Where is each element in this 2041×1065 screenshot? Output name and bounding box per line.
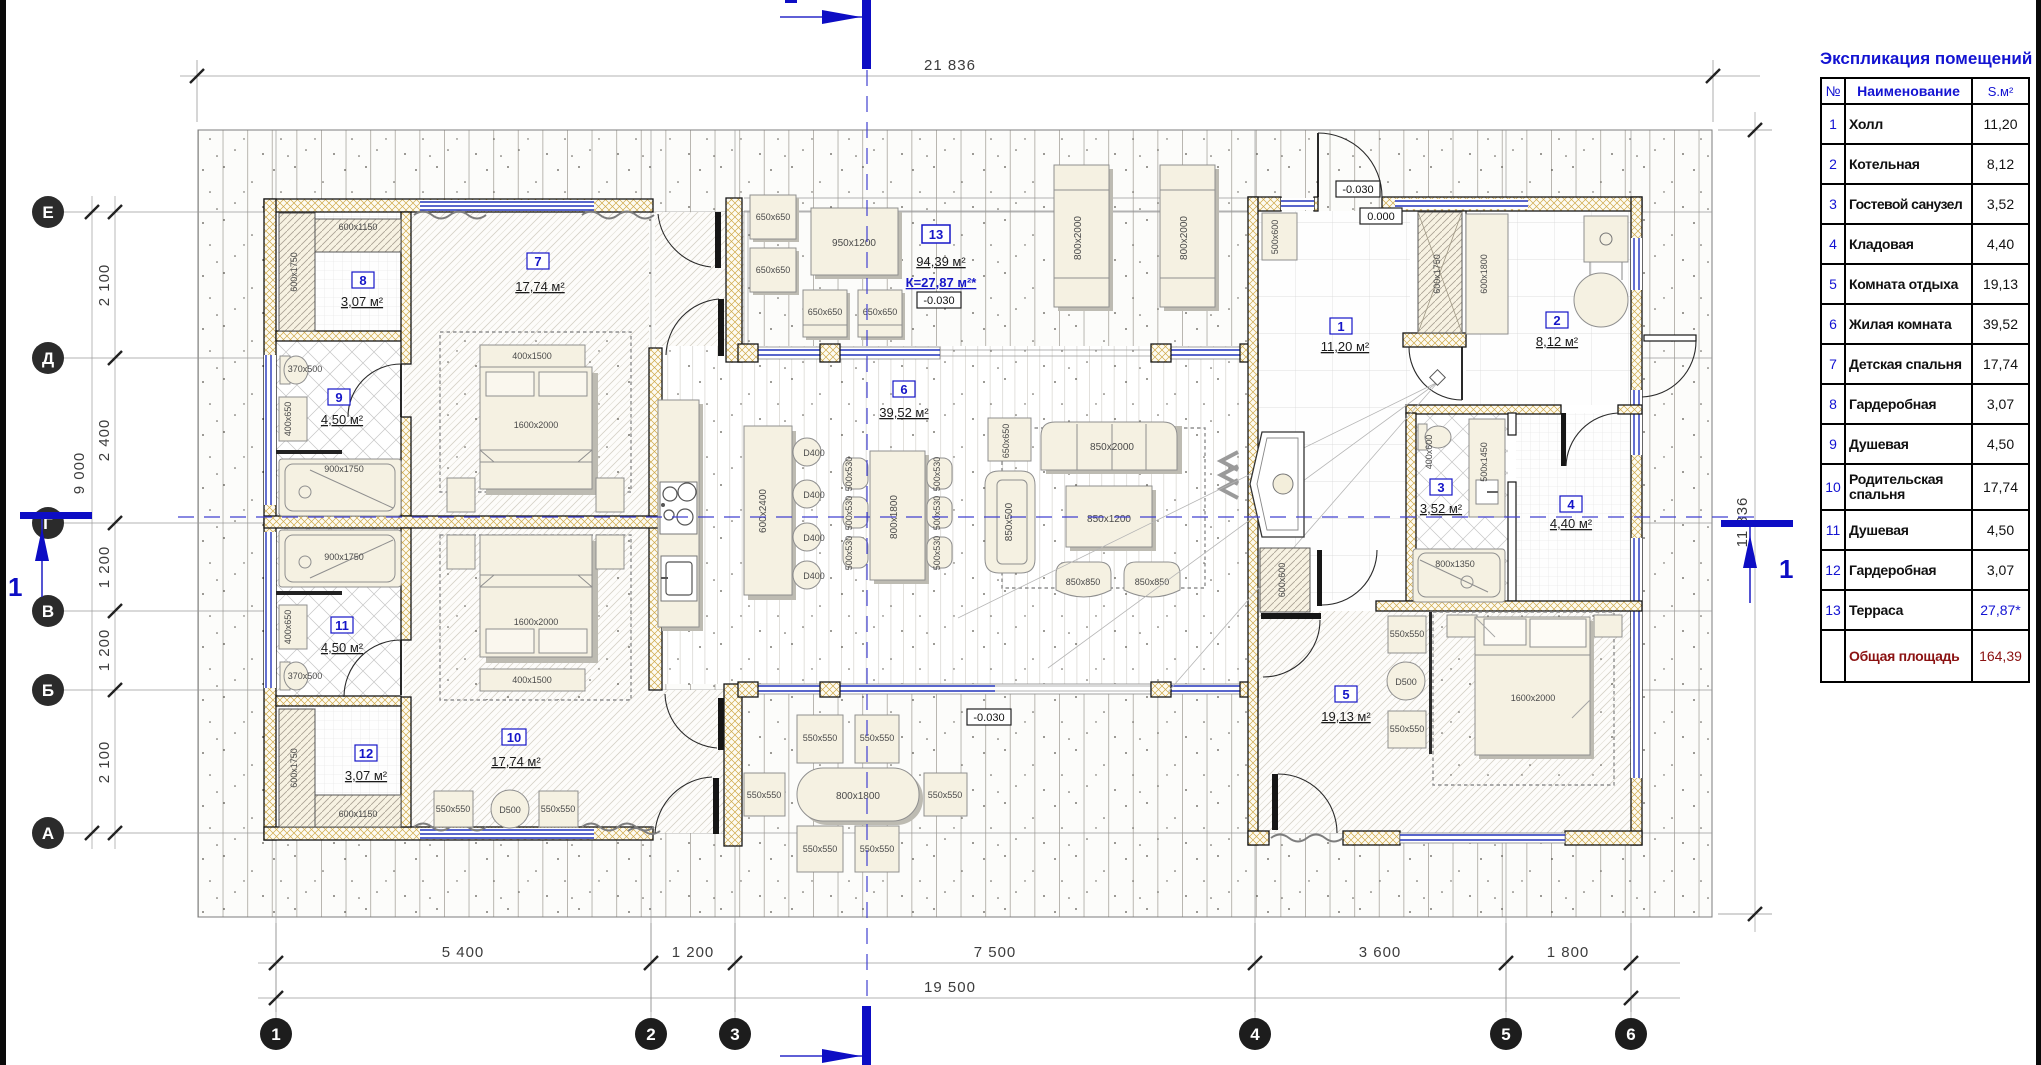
svg-text:1: 1 (1337, 319, 1344, 334)
svg-text:13: 13 (929, 227, 943, 242)
svg-text:7 500: 7 500 (974, 944, 1017, 961)
svg-text:370х500: 370х500 (288, 364, 323, 374)
svg-text:550х550: 550х550 (803, 733, 838, 743)
svg-text:600х1800: 600х1800 (1479, 254, 1489, 294)
svg-text:400х1500: 400х1500 (512, 675, 552, 685)
svg-text:550х550: 550х550 (541, 804, 576, 814)
svg-text:2 100: 2 100 (96, 741, 113, 784)
svg-text:19,13 м²: 19,13 м² (1321, 709, 1371, 724)
svg-text:0.000: 0.000 (1367, 211, 1395, 223)
svg-text:1600х2000: 1600х2000 (514, 420, 559, 430)
svg-text:21 836: 21 836 (924, 57, 976, 74)
svg-text:500х530: 500х530 (844, 457, 854, 492)
svg-text:4: 4 (1250, 1025, 1260, 1044)
svg-text:550х550: 550х550 (860, 733, 895, 743)
svg-text:650х650: 650х650 (1001, 424, 1011, 459)
svg-text:400х1500: 400х1500 (512, 351, 552, 361)
svg-text:600х1750: 600х1750 (1432, 254, 1442, 294)
svg-text:400х650: 400х650 (283, 610, 293, 645)
svg-text:550х550: 550х550 (1390, 724, 1425, 734)
svg-text:7: 7 (534, 254, 541, 269)
svg-text:650х650: 650х650 (808, 307, 843, 317)
svg-text:Е: Е (42, 203, 53, 222)
svg-text:Д: Д (42, 349, 54, 368)
svg-text:1600х2000: 1600х2000 (1511, 693, 1556, 703)
svg-text:-0.030: -0.030 (1342, 184, 1373, 196)
svg-text:5 400: 5 400 (442, 944, 485, 961)
svg-text:600х1150: 600х1150 (339, 222, 378, 232)
svg-text:500х530: 500х530 (932, 536, 942, 571)
svg-text:2: 2 (1553, 313, 1560, 328)
svg-text:500х1450: 500х1450 (1479, 442, 1489, 482)
svg-text:В: В (42, 602, 54, 621)
svg-text:850х2000: 850х2000 (1090, 442, 1134, 453)
svg-text:600х600: 600х600 (1277, 563, 1287, 598)
svg-text:D400: D400 (803, 448, 825, 458)
svg-text:17,74 м²: 17,74 м² (515, 279, 565, 294)
svg-text:3: 3 (730, 1025, 739, 1044)
svg-text:94,39 м²: 94,39 м² (916, 254, 966, 269)
svg-text:900х1750: 900х1750 (324, 464, 364, 474)
svg-text:600х1750: 600х1750 (289, 748, 299, 788)
svg-text:4,50 м²: 4,50 м² (321, 412, 364, 427)
svg-text:2 400: 2 400 (96, 419, 113, 462)
svg-text:550х550: 550х550 (436, 804, 471, 814)
svg-text:500х530: 500х530 (932, 496, 942, 531)
svg-text:600х2400: 600х2400 (758, 489, 769, 533)
svg-text:900х1750: 900х1750 (324, 552, 364, 562)
svg-text:11: 11 (335, 618, 349, 633)
svg-text:950х1200: 950х1200 (832, 238, 876, 249)
svg-text:Б: Б (42, 681, 54, 700)
svg-text:500х600: 500х600 (1270, 220, 1280, 255)
svg-text:370х500: 370х500 (288, 671, 323, 681)
svg-text:4: 4 (1567, 497, 1575, 512)
svg-text:800х2000: 800х2000 (1179, 216, 1190, 260)
svg-text:3,07 м²: 3,07 м² (341, 294, 384, 309)
svg-text:550х550: 550х550 (928, 790, 963, 800)
svg-text:1 200: 1 200 (96, 546, 113, 589)
svg-text:800х2000: 800х2000 (1073, 216, 1084, 260)
svg-text:D500: D500 (1395, 677, 1417, 687)
svg-text:4,40 м²: 4,40 м² (1550, 516, 1593, 531)
svg-text:D400: D400 (803, 533, 825, 543)
svg-text:650х650: 650х650 (756, 265, 791, 275)
svg-text:1: 1 (271, 1025, 280, 1044)
svg-text:11,20 м²: 11,20 м² (1321, 339, 1370, 354)
svg-text:2 100: 2 100 (96, 264, 113, 307)
svg-text:3: 3 (1437, 480, 1444, 495)
svg-text:1 200: 1 200 (96, 629, 113, 672)
svg-text:-0.030: -0.030 (973, 712, 1004, 724)
svg-text:1: 1 (8, 572, 22, 602)
svg-text:800х1800: 800х1800 (836, 791, 880, 802)
svg-text:6: 6 (1626, 1025, 1635, 1044)
svg-text:550х550: 550х550 (860, 844, 895, 854)
svg-text:550х550: 550х550 (1390, 629, 1425, 639)
svg-text:800х1350: 800х1350 (1435, 559, 1475, 569)
svg-text:2: 2 (646, 1025, 655, 1044)
svg-text:17,74 м²: 17,74 м² (491, 754, 541, 769)
svg-text:850х850: 850х850 (1135, 577, 1170, 587)
svg-text:600х1750: 600х1750 (289, 252, 299, 292)
svg-text:D500: D500 (499, 805, 521, 815)
svg-text:D400: D400 (803, 571, 825, 581)
svg-text:850х500: 850х500 (1004, 502, 1015, 541)
svg-text:1: 1 (1779, 554, 1793, 584)
svg-text:400х600: 400х600 (1424, 435, 1434, 470)
svg-text:19 500: 19 500 (924, 979, 976, 996)
svg-text:500х530: 500х530 (844, 536, 854, 571)
svg-text:8,12 м²: 8,12 м² (1536, 334, 1579, 349)
svg-text:850х850: 850х850 (1066, 577, 1101, 587)
svg-text:К=27,87 м²*: К=27,87 м²* (906, 275, 978, 290)
svg-text:8: 8 (359, 273, 366, 288)
svg-text:1 800: 1 800 (1547, 944, 1590, 961)
svg-text:500х530: 500х530 (932, 457, 942, 492)
svg-text:6: 6 (900, 382, 907, 397)
svg-text:400х650: 400х650 (283, 402, 293, 437)
svg-text:3 600: 3 600 (1359, 944, 1402, 961)
svg-text:-0.030: -0.030 (923, 295, 954, 307)
svg-text:9 000: 9 000 (71, 452, 88, 495)
svg-text:850х1200: 850х1200 (1087, 514, 1131, 525)
svg-text:5: 5 (1501, 1025, 1510, 1044)
svg-text:650х650: 650х650 (756, 212, 791, 222)
svg-text:1600х2000: 1600х2000 (514, 617, 559, 627)
svg-text:12: 12 (359, 746, 373, 761)
svg-text:5: 5 (1342, 687, 1349, 702)
svg-text:500х530: 500х530 (844, 496, 854, 531)
svg-text:3,07 м²: 3,07 м² (345, 768, 388, 783)
svg-text:39,52 м²: 39,52 м² (879, 405, 929, 420)
svg-text:9: 9 (335, 390, 342, 405)
svg-text:550х550: 550х550 (803, 844, 838, 854)
svg-text:D400: D400 (803, 490, 825, 500)
svg-text:А: А (42, 824, 54, 843)
svg-text:4,50 м²: 4,50 м² (321, 640, 364, 655)
svg-text:10: 10 (507, 730, 521, 745)
svg-text:600х1150: 600х1150 (339, 809, 378, 819)
svg-text:650х650: 650х650 (863, 307, 898, 317)
svg-text:550х550: 550х550 (747, 790, 782, 800)
svg-text:1 200: 1 200 (672, 944, 715, 961)
svg-text:3,52 м²: 3,52 м² (1420, 501, 1463, 516)
